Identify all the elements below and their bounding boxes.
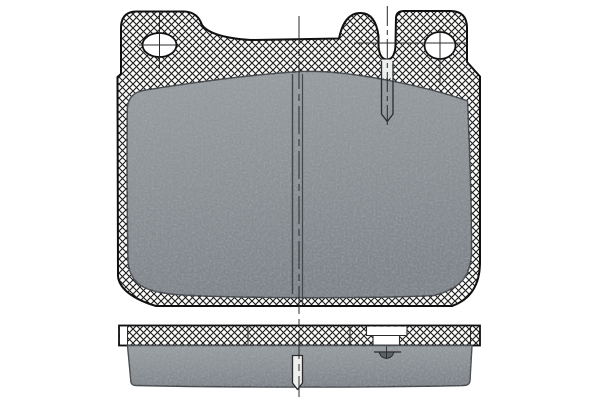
sensor-notch-inner (373, 336, 400, 346)
drawing-canvas (0, 0, 600, 400)
diagram-svg (0, 0, 600, 400)
sensor-notch-outer (367, 327, 408, 336)
center-groove-edge (293, 356, 303, 390)
backing-plate-edge-left-cap (120, 326, 128, 344)
